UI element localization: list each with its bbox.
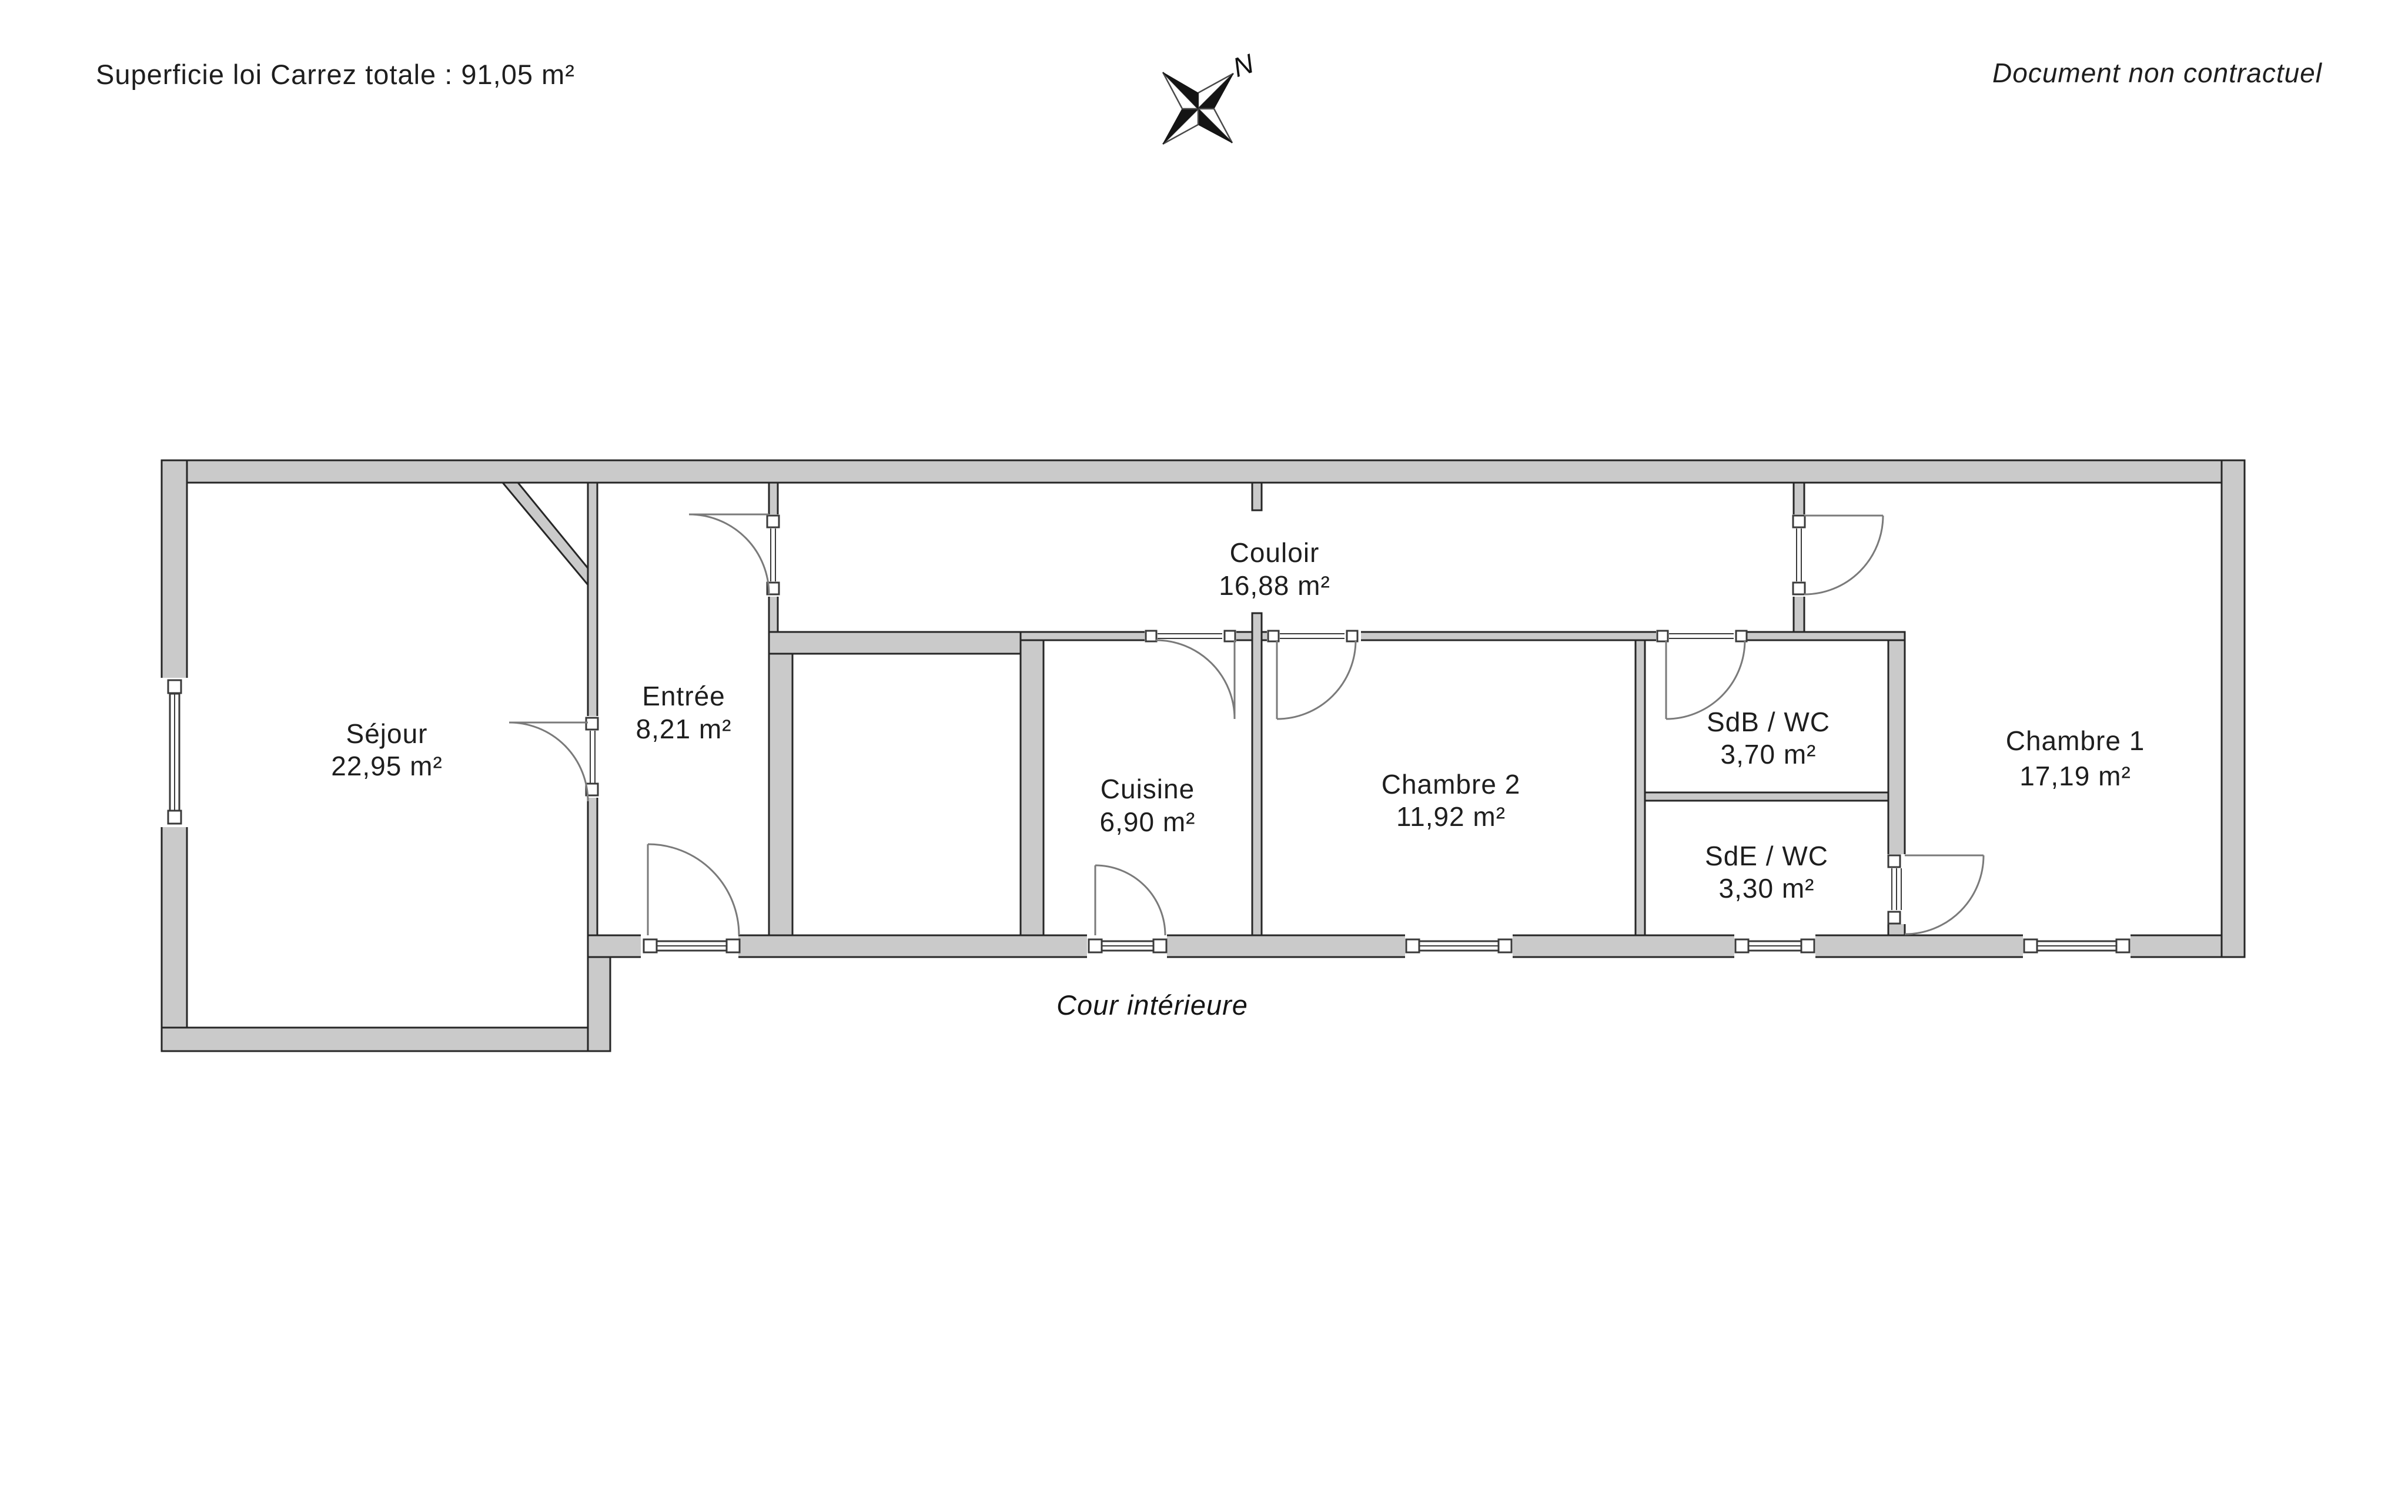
wall-pier-north bbox=[1252, 483, 1262, 510]
compass-rose-icon: N bbox=[1163, 48, 1257, 144]
courtyard-label: Cour intérieure bbox=[1056, 989, 1248, 1021]
floorplan-drawing: Séjour 22,95 m² Entrée 8,21 m² Couloir 1… bbox=[0, 0, 2408, 1512]
room-area-cuisine: 6,90 m² bbox=[1100, 807, 1196, 837]
floorplan-page: Séjour 22,95 m² Entrée 8,21 m² Couloir 1… bbox=[0, 0, 2408, 1512]
door-entree-couloir bbox=[689, 514, 779, 594]
wall-sejour-extension-east bbox=[588, 957, 610, 1051]
wall-north bbox=[162, 460, 2245, 483]
door-couloir-chambre2 bbox=[1268, 631, 1357, 719]
wall-east bbox=[2222, 460, 2245, 957]
door-couloir-sdb bbox=[1657, 631, 1747, 719]
window-chambre1 bbox=[2024, 939, 2129, 952]
door-couloir-cuisine bbox=[1146, 631, 1235, 719]
room-label-couloir: Couloir bbox=[1230, 537, 1320, 568]
room-area-sejour: 22,95 m² bbox=[331, 751, 443, 781]
room-area-couloir: 16,88 m² bbox=[1219, 570, 1330, 601]
wall-chambre2-sdb bbox=[1636, 640, 1645, 935]
window-chambre2 bbox=[1406, 939, 1511, 952]
room-label-sejour: Séjour bbox=[346, 718, 428, 749]
room-label-cuisine: Cuisine bbox=[1101, 774, 1195, 804]
wall-cuisine-west bbox=[1021, 632, 1044, 935]
room-label-entree: Entrée bbox=[642, 681, 725, 711]
wall-sdb-sde bbox=[1645, 792, 1888, 801]
wall-cuisine-chambre2 bbox=[1252, 613, 1262, 935]
room-area-sdb: 3,70 m² bbox=[1721, 739, 1817, 770]
door-sejour bbox=[509, 718, 598, 801]
walls bbox=[162, 460, 2245, 1051]
room-label-sdb: SdB / WC bbox=[1707, 707, 1830, 737]
room-area-entree: 8,21 m² bbox=[636, 714, 732, 744]
wall-courtyard-north bbox=[769, 632, 1021, 654]
room-label-chambre2: Chambre 2 bbox=[1382, 769, 1521, 800]
header-disclaimer: Document non contractuel bbox=[1992, 58, 2323, 88]
window-sejour bbox=[168, 680, 181, 824]
room-label-chambre1: Chambre 1 bbox=[2006, 725, 2145, 756]
wall-sejour-diagonal bbox=[503, 483, 597, 596]
room-area-chambre2: 11,92 m² bbox=[1396, 801, 1506, 832]
room-area-chambre1: 17,19 m² bbox=[2019, 761, 2131, 791]
wall-courtyard-west bbox=[769, 654, 792, 935]
header-total-area: Superficie loi Carrez totale : 91,05 m² bbox=[96, 59, 575, 90]
window-sde bbox=[1735, 939, 1814, 952]
opening-door-sdb bbox=[1656, 630, 1745, 643]
wall-sejour-south bbox=[162, 1028, 610, 1051]
wall-sejour-entree bbox=[588, 483, 597, 935]
wall-openings bbox=[159, 514, 2131, 962]
compass-north-label: N bbox=[1229, 48, 1257, 83]
room-label-sde: SdE / WC bbox=[1705, 841, 1828, 871]
room-area-sde: 3,30 m² bbox=[1719, 873, 1815, 904]
